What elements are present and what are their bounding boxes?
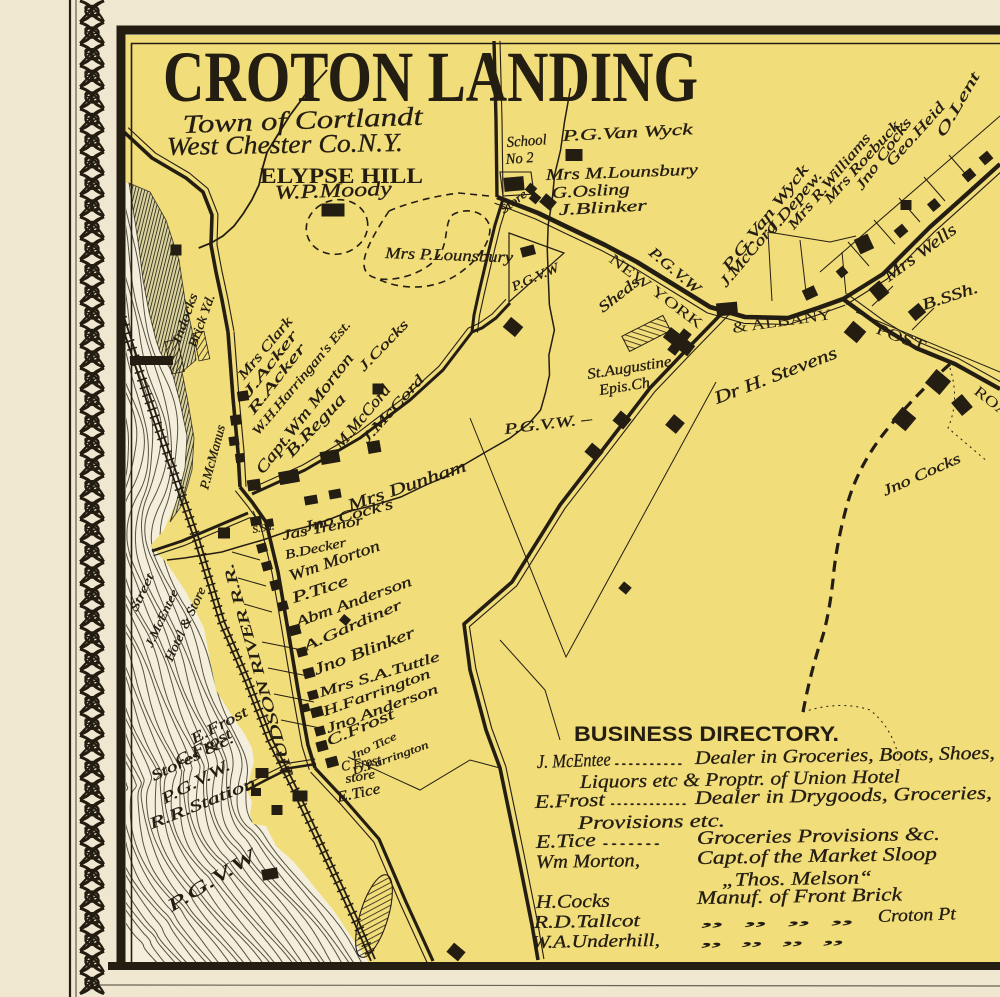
svg-text:West Chester Co.N.Y.: West Chester Co.N.Y. — [167, 128, 403, 161]
svg-text:W.P.Moody: W.P.Moody — [274, 178, 392, 204]
svg-text:BUSINESS DIRECTORY.: BUSINESS DIRECTORY. — [574, 723, 839, 746]
svg-text:„ „ „ „: „ „ „ „ — [700, 926, 850, 949]
svg-text:W.A.Underhill,: W.A.Underhill, — [532, 930, 660, 952]
svg-text:„ „ „ „: „ „ „ „ — [700, 906, 860, 929]
svg-text:E.Frost: E.Frost — [533, 790, 606, 814]
svg-text:Manuf. of Front Brick: Manuf. of Front Brick — [695, 884, 902, 909]
svg-text:Wm Morton,: Wm Morton, — [536, 850, 640, 873]
svg-text:.......: ....... — [602, 834, 662, 849]
svg-text:R.D.Tallcot: R.D.Tallcot — [532, 910, 641, 932]
svg-text:E.Tice: E.Tice — [534, 830, 596, 853]
svg-text:H.Cocks: H.Cocks — [535, 891, 610, 913]
svg-text:School: School — [506, 132, 547, 151]
svg-text:J. McEntee: J. McEntee — [536, 749, 611, 773]
svg-text:..........: .......... — [614, 754, 684, 769]
svg-text:............: ............ — [610, 794, 688, 809]
svg-text:No 2: No 2 — [504, 150, 534, 168]
svg-text:Croton Pt: Croton Pt — [877, 903, 957, 926]
svg-text:CROTON LANDING: CROTON LANDING — [163, 37, 698, 117]
svg-text:Capt.of the Market Sloop: Capt.of the Market Sloop — [697, 844, 937, 869]
